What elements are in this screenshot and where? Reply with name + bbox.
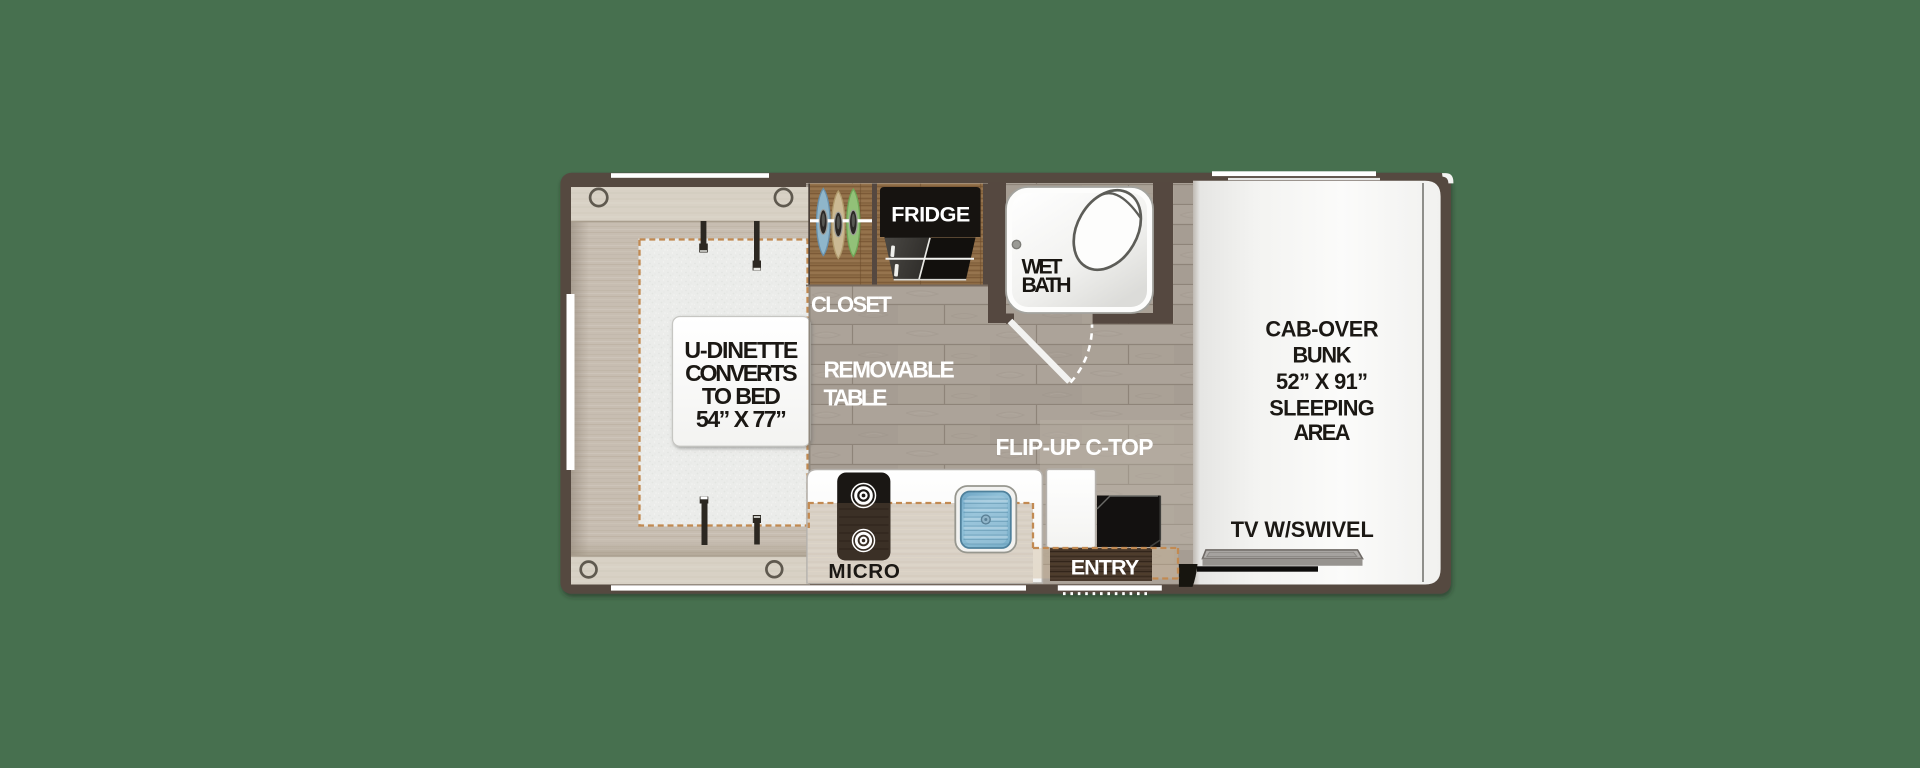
svg-text:FRIDGE: FRIDGE <box>891 201 970 226</box>
svg-text:FLIP-UP C-TOP: FLIP-UP C-TOP <box>996 434 1154 460</box>
svg-text:54” X 77”: 54” X 77” <box>696 406 787 432</box>
svg-text:MICRO: MICRO <box>828 560 900 583</box>
svg-text:SLEEPING: SLEEPING <box>1269 395 1375 420</box>
svg-text:TV W/SWIVEL: TV W/SWIVEL <box>1231 517 1374 542</box>
svg-text:TABLE: TABLE <box>824 385 888 411</box>
svg-text:CAB-OVER: CAB-OVER <box>1265 316 1378 341</box>
svg-text:AREA: AREA <box>1294 420 1351 445</box>
svg-text:CLOSET: CLOSET <box>811 292 893 317</box>
svg-text:REMOVABLE: REMOVABLE <box>824 356 955 382</box>
svg-text:BUNK: BUNK <box>1293 343 1352 368</box>
svg-text:U-DINETTE: U-DINETTE <box>684 337 798 363</box>
svg-text:ENTRY: ENTRY <box>1071 554 1140 579</box>
svg-text:BATH: BATH <box>1022 274 1072 297</box>
svg-text:52” X 91”: 52” X 91” <box>1276 369 1368 394</box>
